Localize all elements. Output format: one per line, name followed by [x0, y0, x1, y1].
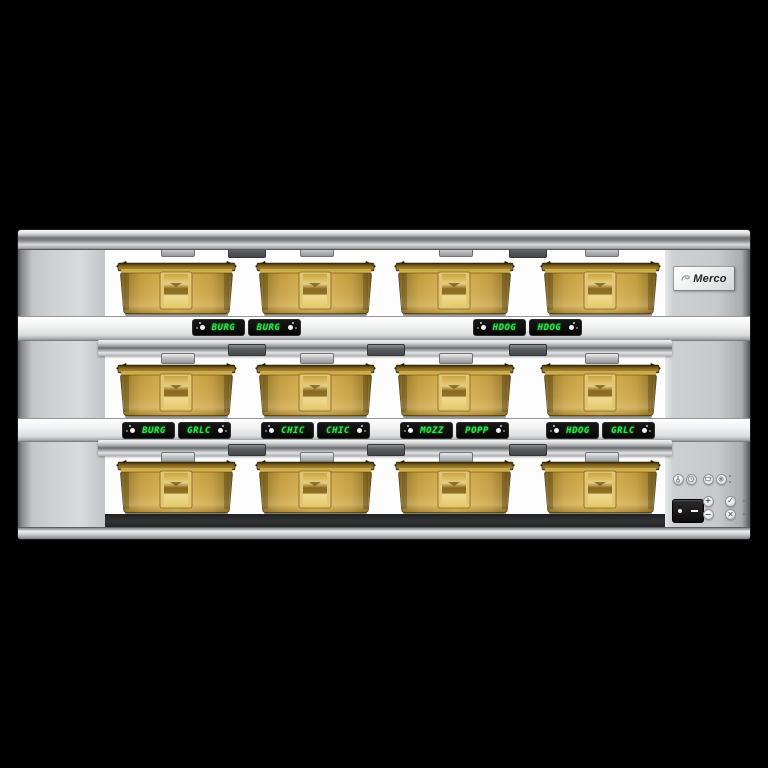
rail-clip: [228, 344, 266, 356]
indicator-dot: [364, 430, 366, 432]
led-display-pair: CHICCHIC: [261, 422, 370, 439]
press-knob-icon: [496, 428, 501, 433]
press-knob-icon: [130, 428, 135, 433]
led-text: CHIC: [321, 426, 355, 436]
rail-clip: [228, 444, 266, 456]
bottom-rail: [18, 527, 750, 539]
indicator-dot: [729, 475, 731, 477]
clock-button[interactable]: [686, 474, 697, 485]
indicator-dot: [649, 430, 651, 432]
cleaning-button[interactable]: [716, 474, 727, 485]
led-display-pair: HDOGGRLC: [546, 422, 655, 439]
press-knob-icon: [642, 428, 647, 433]
led-display-module: BURG: [122, 422, 175, 439]
led-display-module: BURG: [248, 319, 301, 336]
indicator-dot: [404, 430, 406, 432]
pan-select-button[interactable]: [703, 474, 714, 485]
press-knob-icon: [218, 428, 223, 433]
indicator-dot: [295, 327, 297, 329]
led-display-module: BURG: [192, 319, 245, 336]
food-pan: [538, 361, 663, 419]
rail-clip: [367, 344, 405, 356]
rail-clip: [509, 344, 547, 356]
indicator-dot: [196, 327, 198, 329]
led-display-module: GRLC: [602, 422, 655, 439]
top-rail: [18, 230, 750, 250]
press-knob-icon: [357, 428, 362, 433]
food-pan: [392, 259, 517, 317]
led-text: HDOG: [561, 426, 595, 436]
indicator-dot: [576, 327, 578, 329]
power-rocker-switch[interactable]: [672, 499, 704, 523]
led-text: MOZZ: [415, 426, 449, 436]
led-display-module: CHIC: [317, 422, 370, 439]
press-knob-icon: [200, 325, 205, 330]
press-knob-icon: [408, 428, 413, 433]
shelf-board-1: [18, 316, 750, 341]
bottom-heat-strip: [105, 514, 665, 527]
food-pan: [538, 259, 663, 317]
thermometer-icon: [674, 475, 682, 483]
led-display-pair: MOZZPOPP: [400, 422, 509, 439]
plus-button[interactable]: +: [703, 496, 714, 507]
indicator-dot: [743, 513, 745, 515]
clock-icon: [687, 475, 695, 483]
led-text: GRLC: [182, 426, 216, 436]
cleaning-icon: [717, 475, 725, 483]
press-knob-icon: [269, 428, 274, 433]
press-knob-icon: [288, 325, 293, 330]
indicator-dot: [729, 481, 731, 483]
indicator-dot: [503, 430, 505, 432]
led-display-pair: BURGGRLC: [122, 422, 231, 439]
rail-clip: [367, 444, 405, 456]
food-pan: [392, 458, 517, 516]
product-photo: BURGBURGHDOGHDOGBURGGRLCCHICCHICMOZZPOPP…: [0, 0, 768, 768]
led-text: POPP: [460, 426, 494, 436]
press-knob-icon: [481, 325, 486, 330]
led-text: CHIC: [276, 426, 310, 436]
indicator-dot: [126, 430, 128, 432]
led-text: HDOG: [488, 323, 522, 333]
led-display-module: CHIC: [261, 422, 314, 439]
led-display-module: HDOG: [473, 319, 526, 336]
food-pan: [253, 458, 378, 516]
power-on-mark: [678, 509, 682, 513]
food-pan: [114, 458, 239, 516]
minus-button[interactable]: −: [703, 509, 714, 520]
food-pan: [253, 259, 378, 317]
led-text: BURG: [137, 426, 171, 436]
food-pan: [114, 259, 239, 317]
merco-swoosh-icon: [681, 274, 692, 283]
led-text: BURG: [207, 323, 241, 333]
cancel-button[interactable]: ✕: [725, 509, 736, 520]
food-pan: [392, 361, 517, 419]
food-pan: [253, 361, 378, 419]
power-off-mark: [691, 510, 698, 512]
pan-icon: [704, 475, 712, 483]
press-knob-icon: [554, 428, 559, 433]
brand-logo-text: Merco: [693, 273, 726, 285]
indicator-dot: [743, 500, 745, 502]
brand-logo-plate: Merco: [673, 266, 735, 291]
led-display-pair: BURGBURG: [192, 319, 301, 336]
merco-holding-bin-unit: BURGBURGHDOGHDOGBURGGRLCCHICCHICMOZZPOPP…: [18, 230, 750, 539]
led-text: GRLC: [606, 426, 640, 436]
confirm-button[interactable]: ✓: [725, 496, 736, 507]
led-display-pair: HDOGHDOG: [473, 319, 582, 336]
control-panel: + − ✓ ✕: [667, 468, 750, 526]
indicator-dot: [265, 430, 267, 432]
indicator-dot: [225, 430, 227, 432]
thermometer-button[interactable]: [673, 474, 684, 485]
led-text: BURG: [252, 323, 286, 333]
led-display-module: MOZZ: [400, 422, 453, 439]
indicator-dot: [550, 430, 552, 432]
rail-clip: [509, 444, 547, 456]
food-pan: [538, 458, 663, 516]
left-side-panel: [18, 249, 105, 527]
led-display-module: HDOG: [529, 319, 582, 336]
press-knob-icon: [569, 325, 574, 330]
led-text: HDOG: [533, 323, 567, 333]
led-display-module: HDOG: [546, 422, 599, 439]
indicator-dot: [477, 327, 479, 329]
led-display-module: GRLC: [178, 422, 231, 439]
led-display-module: POPP: [456, 422, 509, 439]
food-pan: [114, 361, 239, 419]
